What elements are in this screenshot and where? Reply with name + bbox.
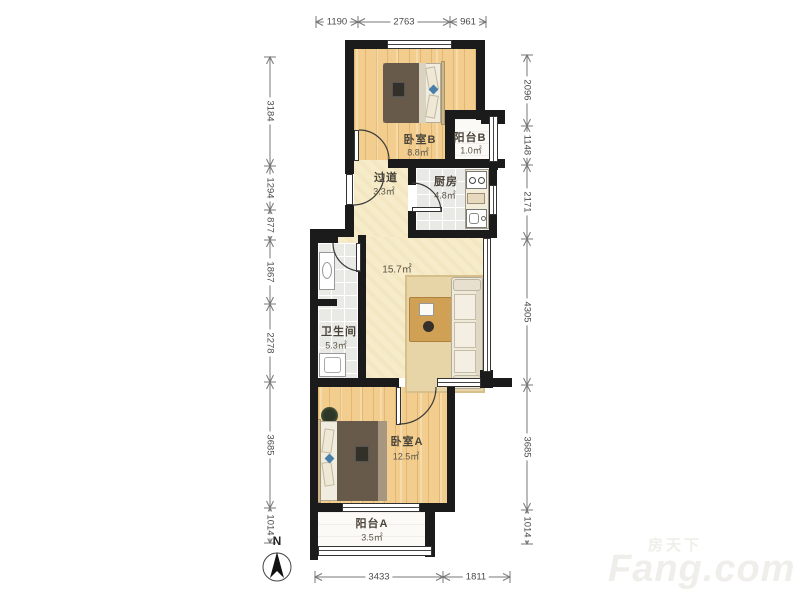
dimension-label: 1811: [463, 572, 489, 583]
room-area-corridor: 3.3㎡: [373, 185, 395, 198]
window: [489, 185, 497, 215]
sink-bowl: [469, 213, 479, 224]
bathroom-sink: [319, 252, 335, 290]
window: [387, 40, 452, 49]
wall: [420, 503, 455, 512]
sofa-cushion: [454, 322, 476, 348]
room-area-kitchen: 4.8㎡: [434, 189, 456, 202]
wall: [447, 387, 455, 512]
table-decor: [423, 321, 434, 332]
dimension-label: 1014: [522, 513, 533, 540]
bathroom-door-leaf: [356, 243, 361, 272]
dimension-label: 877: [265, 214, 276, 236]
dimension-label: 2096: [522, 76, 533, 103]
window: [489, 116, 498, 162]
sofa: [451, 277, 483, 389]
window: [437, 378, 481, 387]
stove-icon: [466, 171, 487, 189]
floorplan-canvas: 1190 2763 961 3184 1294 877 1867 2278 36…: [0, 0, 800, 600]
dimension-label: 961: [457, 17, 479, 28]
dimension-label: 2763: [390, 17, 417, 28]
room-area-balcony-a: 3.5㎡: [361, 531, 383, 544]
room-area-bathroom: 5.3㎡: [325, 339, 347, 352]
washer-icon: [319, 353, 346, 377]
dimension-label: 2171: [522, 188, 533, 215]
room-area-balcony-b: 1.0㎡: [460, 144, 482, 157]
room-label-bedroom-a: 卧室A: [391, 433, 424, 449]
dimension-label: 2278: [265, 329, 276, 356]
table-tray: [419, 303, 434, 316]
bed-decor: [355, 446, 369, 462]
sofa-cushion: [454, 350, 476, 373]
burner: [469, 177, 476, 184]
coffee-table: [409, 297, 452, 342]
entry-door-leaf: [346, 174, 353, 205]
room-label-kitchen: 厨房: [434, 173, 458, 189]
bed-decor: [392, 82, 405, 97]
wall: [388, 159, 505, 168]
sofa-armrest: [453, 279, 481, 291]
wall: [408, 230, 497, 238]
wall: [476, 40, 485, 120]
window: [483, 238, 491, 372]
faucet: [481, 216, 486, 221]
wall: [345, 40, 354, 174]
dimension-label: 1294: [265, 174, 276, 201]
watermark-logo: Fang.com: [608, 548, 795, 591]
sofa-cushion: [454, 294, 476, 320]
burner: [478, 177, 485, 184]
window: [318, 546, 432, 556]
room-area-bedroom-b: 8.8㎡: [407, 146, 429, 159]
room-area-living: 15.7㎡: [382, 261, 411, 276]
wall: [318, 503, 342, 512]
room-label-balcony-a: 阳台A: [356, 515, 389, 531]
dimension-label: 3685: [265, 431, 276, 458]
dimension-label: 3184: [265, 97, 276, 124]
cutting-board: [467, 193, 485, 204]
room-label-corridor: 过道: [374, 169, 398, 185]
room-label-bathroom: 卫生间: [321, 323, 357, 339]
wall: [408, 168, 416, 185]
sink-icon: [466, 209, 487, 228]
dimension-label: 4305: [522, 298, 533, 325]
dimension-label: 1190: [324, 17, 350, 28]
dimension-label: 3685: [522, 433, 533, 460]
wall: [318, 235, 338, 243]
north-label: N: [273, 534, 282, 548]
washer-drum: [324, 357, 341, 373]
sliding-door-window: [342, 503, 420, 512]
dimension-label: 1148: [522, 132, 533, 158]
bedroom-b-door-leaf: [354, 130, 359, 161]
dimension-label: 3433: [365, 572, 392, 583]
bed-blanket-stripe: [378, 421, 387, 501]
wall: [310, 229, 318, 560]
wall: [310, 378, 399, 387]
bedroom-a-door-leaf: [396, 387, 401, 425]
basin: [322, 262, 332, 279]
kitchen-door-leaf: [412, 207, 442, 212]
room-area-bedroom-a: 12.5㎡: [393, 450, 420, 463]
wall: [480, 378, 512, 387]
dimension-label: 1867: [265, 258, 276, 285]
wall: [310, 299, 337, 306]
